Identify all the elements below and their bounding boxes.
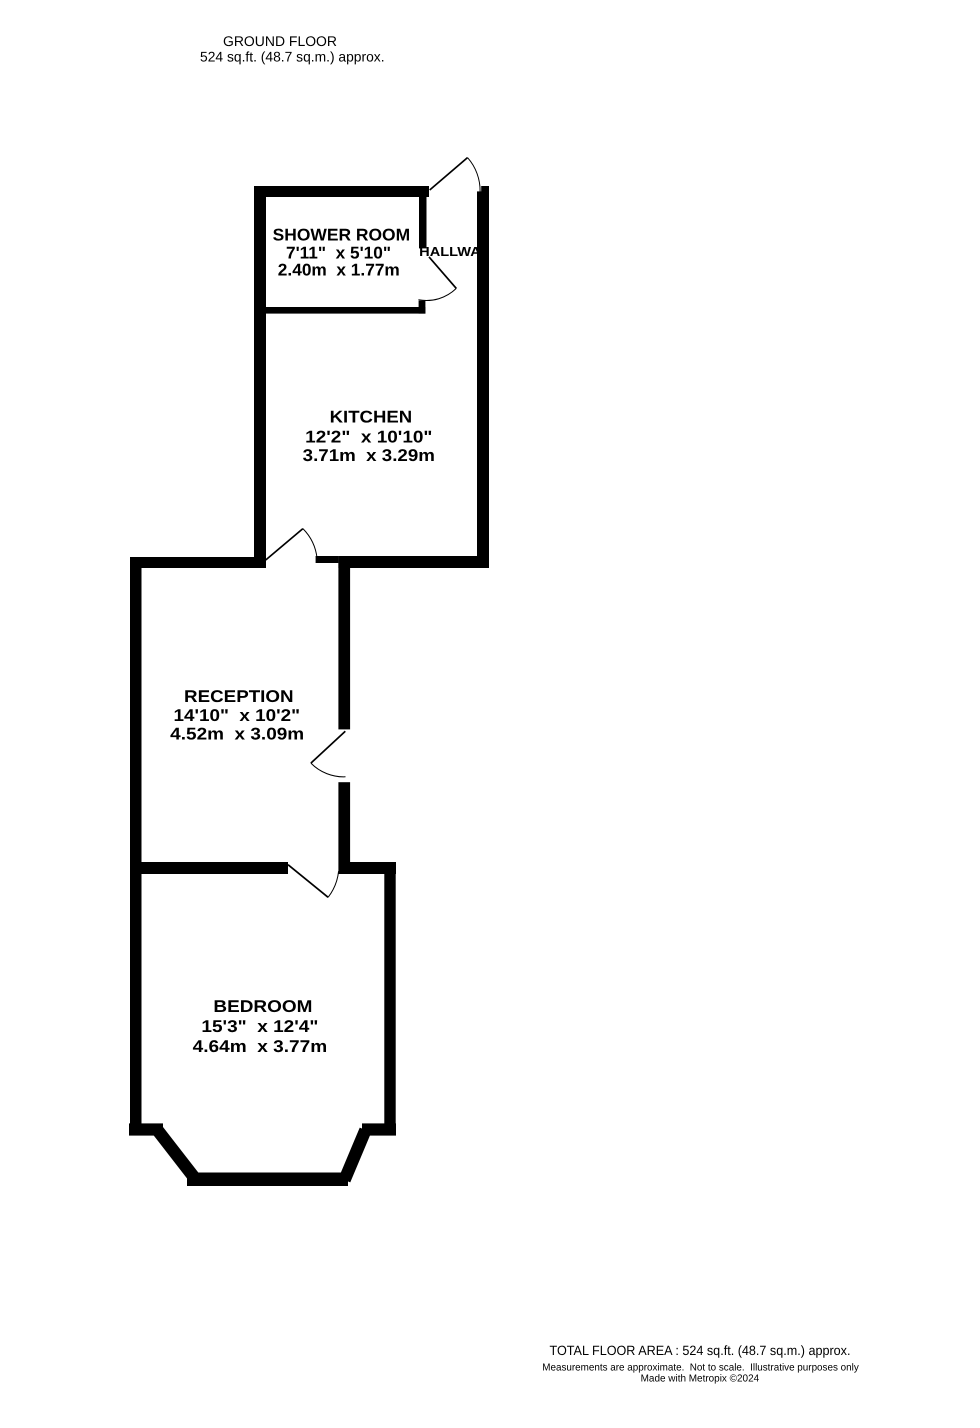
svg-text:3.71m x 3.29m: 3.71m x 3.29m: [303, 446, 435, 465]
svg-text:GROUND FLOOR: GROUND FLOOR: [223, 33, 337, 49]
svg-text:14'10" x 10'2": 14'10" x 10'2": [174, 706, 301, 725]
svg-text:12'2" x 10'10": 12'2" x 10'10": [305, 427, 432, 446]
svg-text:524 sq.ft. (48.7 sq.m.) approx: 524 sq.ft. (48.7 sq.m.) approx.: [200, 48, 385, 64]
svg-text:15'3" x 12'4": 15'3" x 12'4": [201, 1017, 318, 1036]
svg-text:BEDROOM: BEDROOM: [213, 997, 312, 1016]
svg-text:Made with Metropix ©2024: Made with Metropix ©2024: [641, 1373, 760, 1384]
svg-text:KITCHEN: KITCHEN: [330, 408, 413, 427]
svg-text:SHOWER ROOM: SHOWER ROOM: [273, 226, 411, 245]
svg-text:4.64m x 3.77m: 4.64m x 3.77m: [193, 1037, 328, 1056]
svg-text:RECEPTION: RECEPTION: [184, 687, 294, 706]
svg-text:4.52m x 3.09m: 4.52m x 3.09m: [170, 725, 304, 744]
svg-text:Measurements are approximate.: Measurements are approximate. Not to sca…: [542, 1363, 859, 1374]
svg-text:TOTAL FLOOR AREA : 524 sq.ft.: TOTAL FLOOR AREA : 524 sq.ft. (48.7 sq.m…: [550, 1343, 851, 1358]
svg-text:2.40m x 1.77m: 2.40m x 1.77m: [278, 260, 400, 279]
